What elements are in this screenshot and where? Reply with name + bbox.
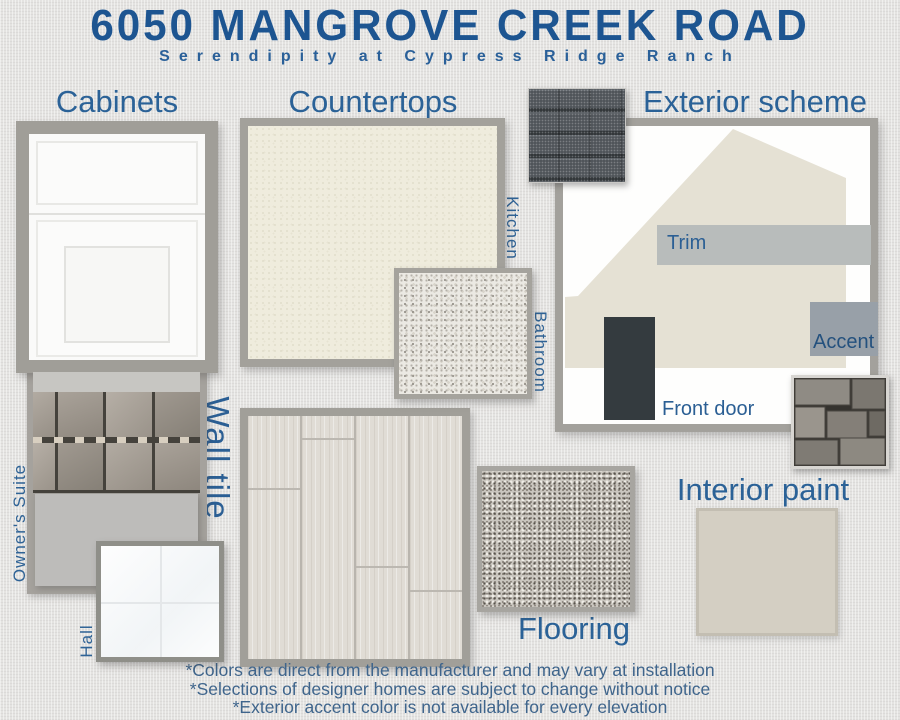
- tile: [58, 392, 103, 437]
- cabinet-door-panel: [64, 246, 170, 343]
- wood-planks: [248, 416, 462, 659]
- cabinets-heading: Cabinets: [56, 84, 178, 120]
- trim-label: Trim: [667, 232, 706, 255]
- disclaimer-line: *Exterior accent color is not available …: [0, 698, 900, 717]
- disclaimer-line: *Selections of designer homes are subjec…: [0, 680, 900, 699]
- wood-flooring-swatch: [240, 408, 470, 667]
- tile: [106, 392, 152, 437]
- plank-joint: [356, 566, 408, 568]
- hall-label: Hall: [77, 624, 97, 657]
- disclaimer-notes: *Colors are direct from the manufacturer…: [0, 661, 900, 717]
- tile: [155, 443, 200, 490]
- flooring-heading: Flooring: [518, 611, 630, 647]
- front-door-swatch: [604, 317, 655, 420]
- cabinet-door-front: [36, 220, 198, 357]
- cabinet-swatch: [16, 121, 218, 373]
- plank-joint: [248, 488, 300, 490]
- exterior-scheme-heading: Exterior scheme: [643, 84, 867, 120]
- page-subtitle: Serendipity at Cypress Ridge Ranch: [0, 48, 900, 66]
- tile-row: [33, 392, 200, 437]
- design-selections-board: 6050 MANGROVE CREEK ROAD Serendipity at …: [0, 0, 900, 720]
- tile-row: [33, 443, 200, 490]
- hall-tile-swatch: [96, 541, 224, 662]
- trim-swatch: Trim: [657, 225, 871, 265]
- countertops-heading: Countertops: [289, 84, 458, 120]
- stone-veneer-swatch: [791, 375, 889, 469]
- disclaimer-line: *Colors are direct from the manufacturer…: [0, 661, 900, 680]
- page-title: 6050 MANGROVE CREEK ROAD: [18, 1, 882, 51]
- tile: [106, 443, 152, 490]
- carpet-swatch: [477, 466, 635, 612]
- interior-paint-swatch: [696, 508, 838, 636]
- tile: [155, 392, 200, 437]
- stone-blocks: [794, 378, 886, 466]
- roof-shingle-swatch: [528, 88, 626, 183]
- interior-paint-heading: Interior paint: [677, 472, 849, 508]
- accent-label: Accent: [813, 331, 874, 354]
- owners-suite-tile-swatch: [33, 372, 200, 493]
- cabinet-divider: [29, 213, 205, 215]
- accent-swatch: Accent: [810, 302, 878, 356]
- plank-joint: [410, 590, 462, 592]
- bathroom-countertop-swatch: [394, 268, 532, 399]
- front-door-label: Front door: [662, 398, 754, 421]
- cabinet-drawer-front: [36, 141, 198, 205]
- tile: [58, 443, 103, 490]
- tile: [33, 392, 55, 437]
- plank-joint: [302, 438, 354, 440]
- tile: [33, 443, 55, 490]
- tile-grout-line: [101, 602, 219, 604]
- tile-top-strip: [33, 372, 200, 392]
- kitchen-label: Kitchen: [502, 196, 522, 260]
- bathroom-label: Bathroom: [530, 311, 550, 393]
